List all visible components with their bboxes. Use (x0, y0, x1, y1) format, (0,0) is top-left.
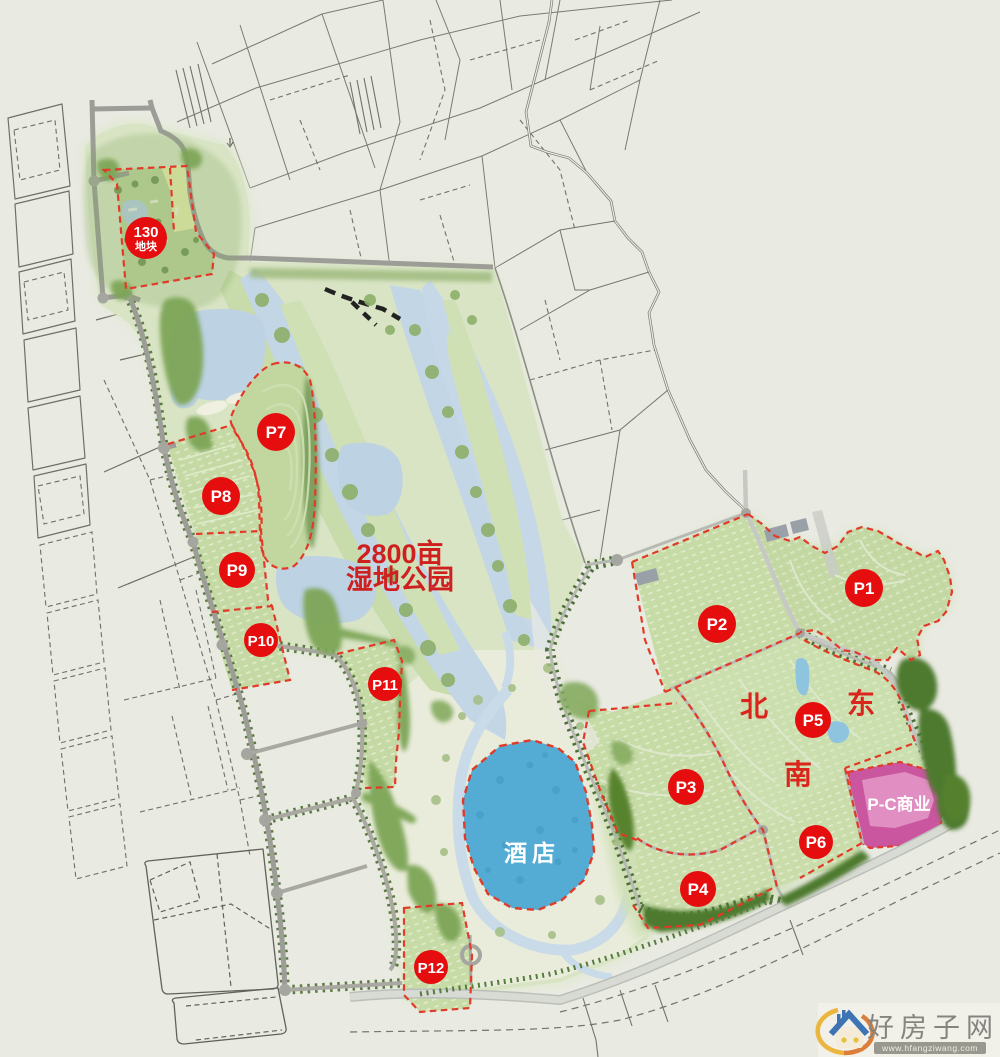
svg-text:P11: P11 (372, 677, 398, 694)
svg-text:P6: P6 (806, 833, 827, 852)
svg-text:湿地公园: 湿地公园 (346, 565, 454, 595)
svg-text:P9: P9 (227, 561, 248, 580)
svg-text:130: 130 (133, 224, 158, 241)
svg-text:P3: P3 (676, 778, 697, 797)
svg-text:P12: P12 (418, 960, 445, 977)
svg-text:P10: P10 (248, 633, 275, 650)
svg-text:P-C商业: P-C商业 (867, 794, 930, 814)
svg-text:P1: P1 (854, 579, 875, 598)
svg-text:东: 东 (847, 687, 875, 719)
svg-text:P2: P2 (707, 615, 728, 634)
svg-text:P5: P5 (803, 711, 824, 730)
svg-text:P4: P4 (688, 880, 709, 899)
svg-text:南: 南 (784, 759, 812, 790)
svg-text:www.hfangziwang.com: www.hfangziwang.com (881, 1043, 978, 1053)
svg-text:地块: 地块 (135, 239, 158, 253)
svg-text:好房子网: 好房子网 (867, 1013, 999, 1043)
svg-text:酒店: 酒店 (504, 840, 560, 866)
svg-text:P7: P7 (266, 423, 287, 442)
svg-text:P8: P8 (211, 487, 232, 506)
svg-text:北: 北 (740, 691, 768, 722)
